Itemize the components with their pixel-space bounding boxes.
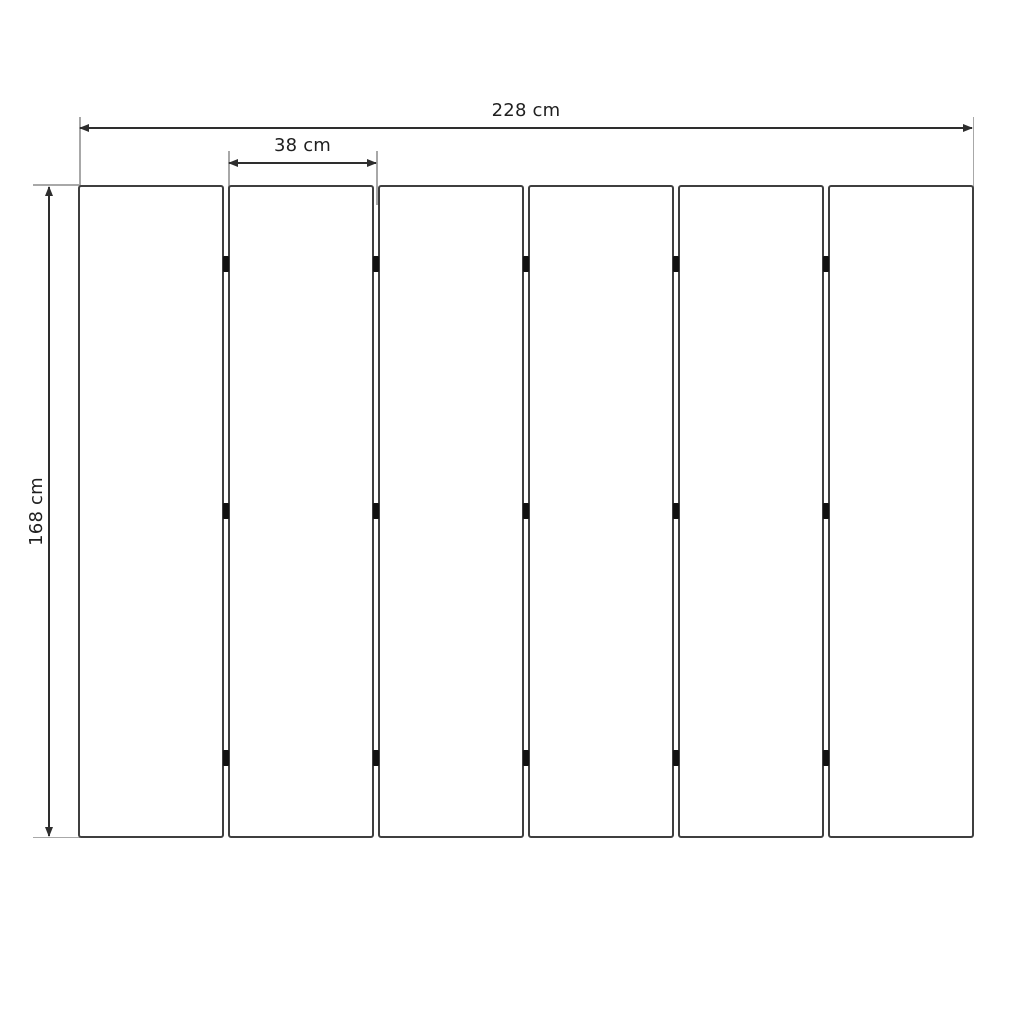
panel-width-dimension-line xyxy=(229,162,376,164)
hinge-mark xyxy=(823,750,829,766)
hinge-mark xyxy=(673,503,679,519)
hinge-mark xyxy=(223,750,229,766)
total-width-label: 228 cm xyxy=(80,100,972,121)
panel xyxy=(78,185,224,838)
height-dimension-line xyxy=(48,187,50,836)
panel xyxy=(228,185,374,838)
panel xyxy=(828,185,974,838)
hinge-mark xyxy=(523,750,529,766)
hinge-mark xyxy=(523,503,529,519)
arrowhead-left-icon xyxy=(228,159,238,167)
hinge-mark xyxy=(823,256,829,272)
panel-dimension-diagram: 228 cm 38 cm 168 cm xyxy=(0,0,1024,1024)
hinge-mark xyxy=(523,256,529,272)
hinge-mark xyxy=(673,256,679,272)
arrowhead-right-icon xyxy=(963,124,973,132)
hinge-mark xyxy=(223,256,229,272)
hinge-mark xyxy=(373,750,379,766)
arrowhead-right-icon xyxy=(367,159,377,167)
panel-width-label: 38 cm xyxy=(229,135,376,156)
arrowhead-down-icon xyxy=(45,827,53,837)
hinge-mark xyxy=(373,256,379,272)
hinge-mark xyxy=(673,750,679,766)
hinge-mark xyxy=(373,503,379,519)
panel xyxy=(378,185,524,838)
height-label-text: 168 cm xyxy=(26,477,47,546)
arrowhead-up-icon xyxy=(45,186,53,196)
panel xyxy=(678,185,824,838)
total-width-dimension-line xyxy=(80,127,972,129)
panel xyxy=(528,185,674,838)
height-label: 168 cm xyxy=(12,185,60,838)
arrowhead-left-icon xyxy=(79,124,89,132)
hinge-mark xyxy=(823,503,829,519)
hinge-mark xyxy=(223,503,229,519)
